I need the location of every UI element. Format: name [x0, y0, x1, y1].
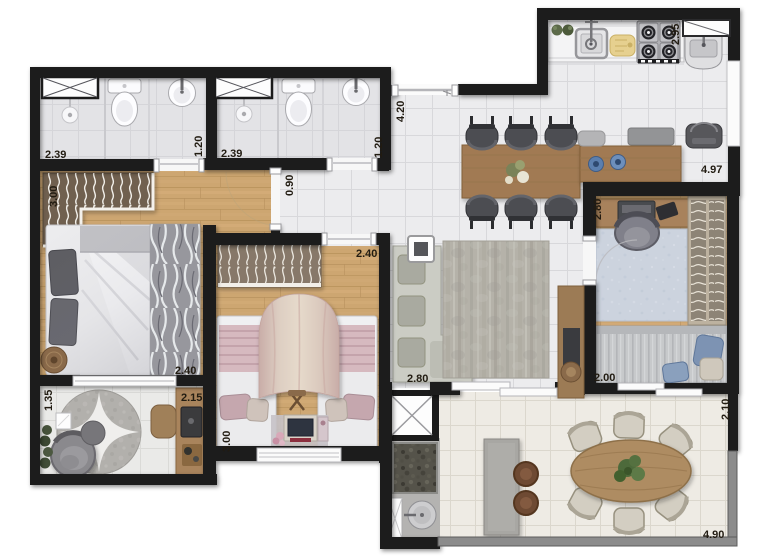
svg-text:0.90: 0.90: [284, 175, 296, 196]
svg-text:1.20: 1.20: [193, 136, 205, 157]
svg-text:4.97: 4.97: [701, 164, 722, 176]
svg-text:2.80: 2.80: [592, 199, 604, 220]
svg-text:2.39: 2.39: [221, 148, 242, 160]
svg-text:2.40: 2.40: [175, 365, 196, 377]
svg-text:2.00: 2.00: [594, 372, 615, 384]
svg-text:2.39: 2.39: [45, 149, 66, 161]
svg-text:2.10: 2.10: [720, 399, 732, 420]
svg-text:2.80: 2.80: [407, 373, 428, 385]
svg-text:4.20: 4.20: [395, 101, 407, 122]
svg-text:2.15: 2.15: [181, 392, 202, 404]
svg-text:2.40: 2.40: [356, 248, 377, 260]
svg-text:3.00: 3.00: [48, 186, 60, 207]
svg-text:1.20: 1.20: [373, 137, 385, 158]
svg-text:2.95: 2.95: [670, 24, 682, 45]
svg-text:3.00: 3.00: [221, 431, 233, 452]
svg-text:1.35: 1.35: [43, 390, 55, 411]
svg-text:4.90: 4.90: [703, 529, 724, 541]
